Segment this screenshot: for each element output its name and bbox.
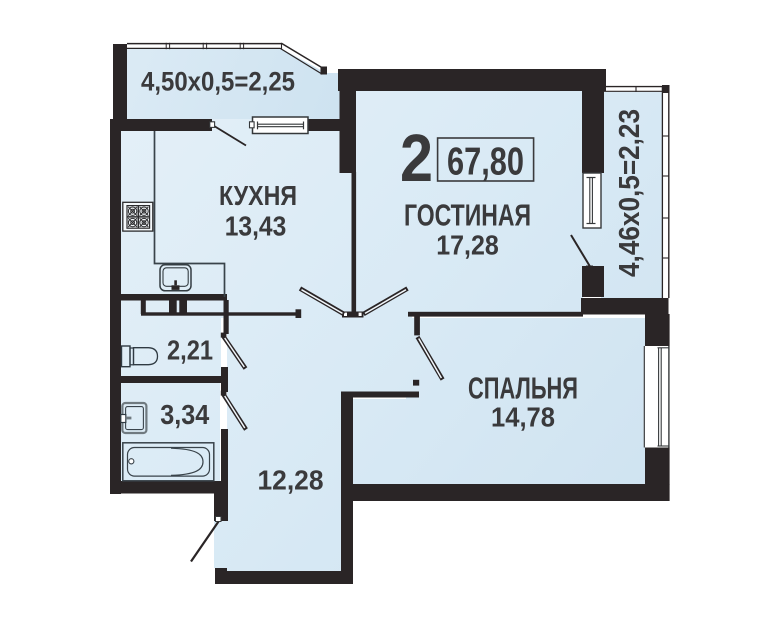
svg-text:2: 2 (400, 121, 433, 196)
svg-text:КУХНЯ: КУХНЯ (219, 180, 297, 211)
svg-text:13,43: 13,43 (225, 211, 287, 242)
svg-text:67,80: 67,80 (447, 141, 524, 184)
svg-text:14,78: 14,78 (491, 402, 555, 433)
svg-text:17,28: 17,28 (436, 230, 499, 261)
svg-text:4,46x0,5=2,23: 4,46x0,5=2,23 (614, 109, 646, 277)
svg-text:4,50x0,5=2,25: 4,50x0,5=2,25 (141, 67, 295, 97)
svg-text:СПАЛЬНЯ: СПАЛЬНЯ (468, 371, 578, 406)
svg-text:ГОСТИНАЯ: ГОСТИНАЯ (404, 198, 531, 233)
svg-text:2,21: 2,21 (167, 335, 213, 366)
svg-text:3,34: 3,34 (160, 399, 210, 430)
svg-text:12,28: 12,28 (258, 465, 324, 496)
